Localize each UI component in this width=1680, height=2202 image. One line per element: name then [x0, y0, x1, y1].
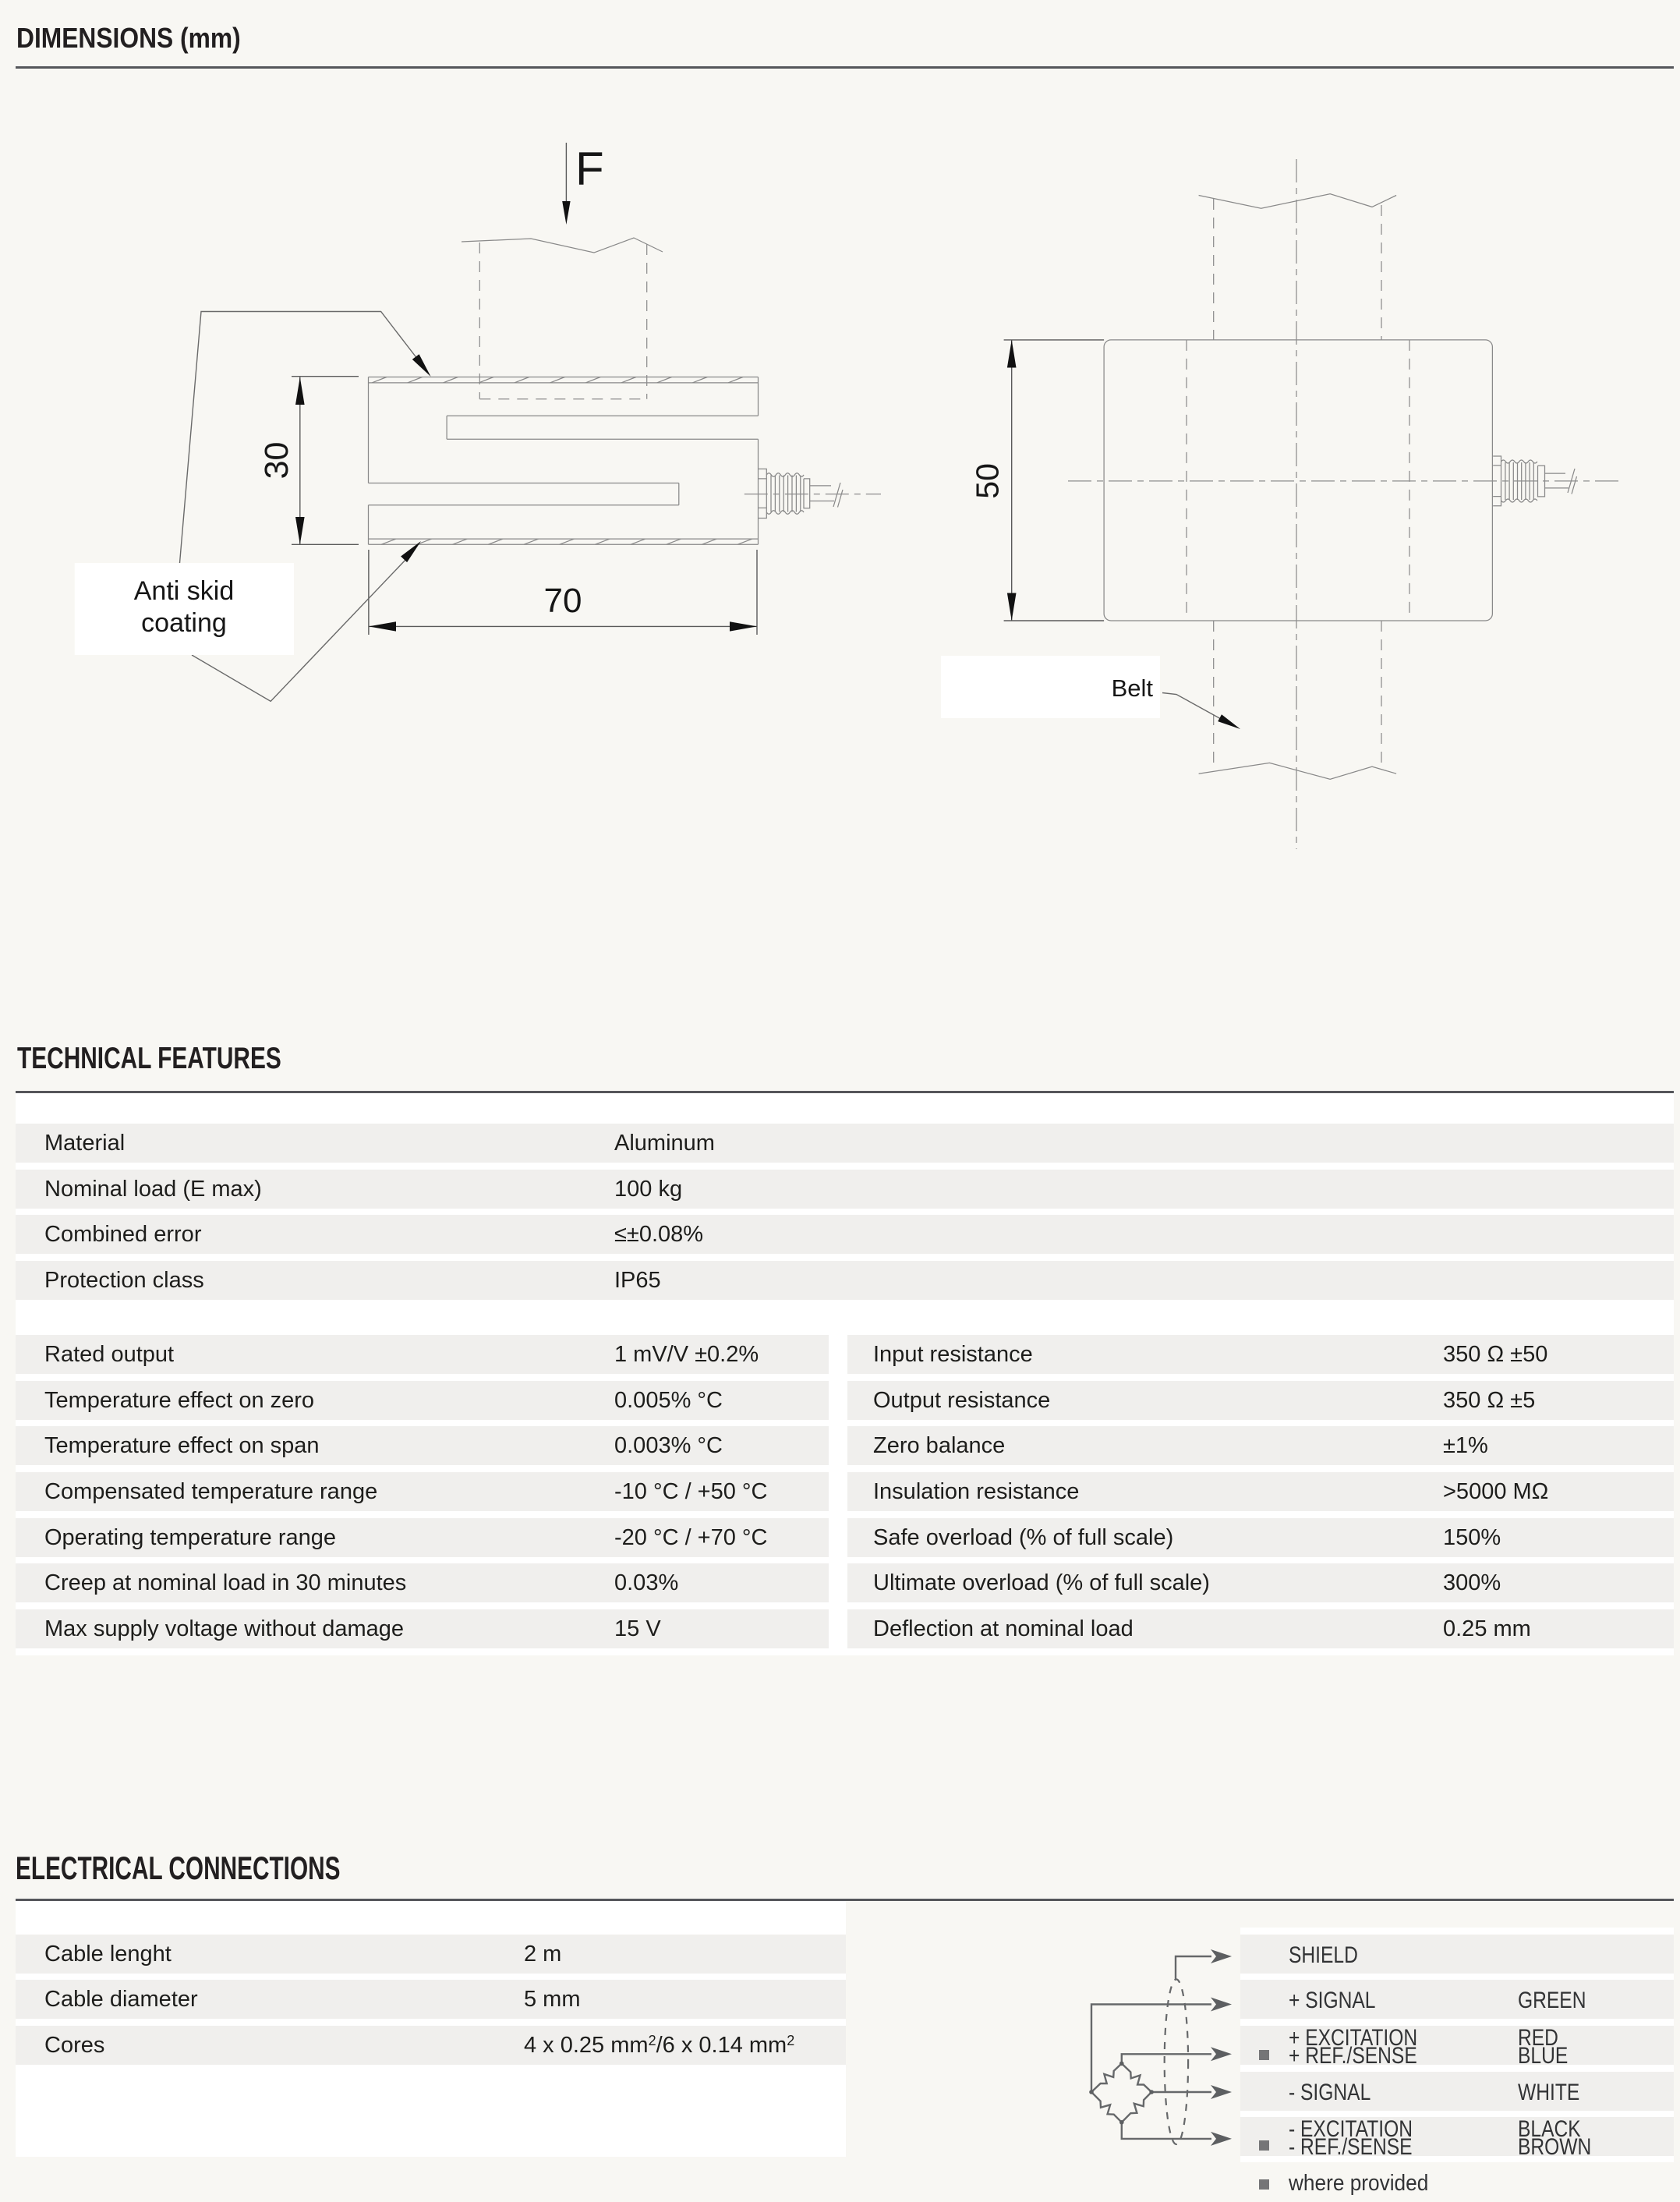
svg-text:coating: coating [141, 608, 227, 638]
svg-text:70: 70 [544, 582, 582, 620]
svg-text:F: F [575, 143, 604, 195]
svg-text:50: 50 [969, 463, 1005, 499]
svg-text:Belt: Belt [1112, 674, 1154, 702]
svg-text:Anti skid: Anti skid [134, 576, 235, 606]
svg-text:30: 30 [258, 442, 295, 480]
